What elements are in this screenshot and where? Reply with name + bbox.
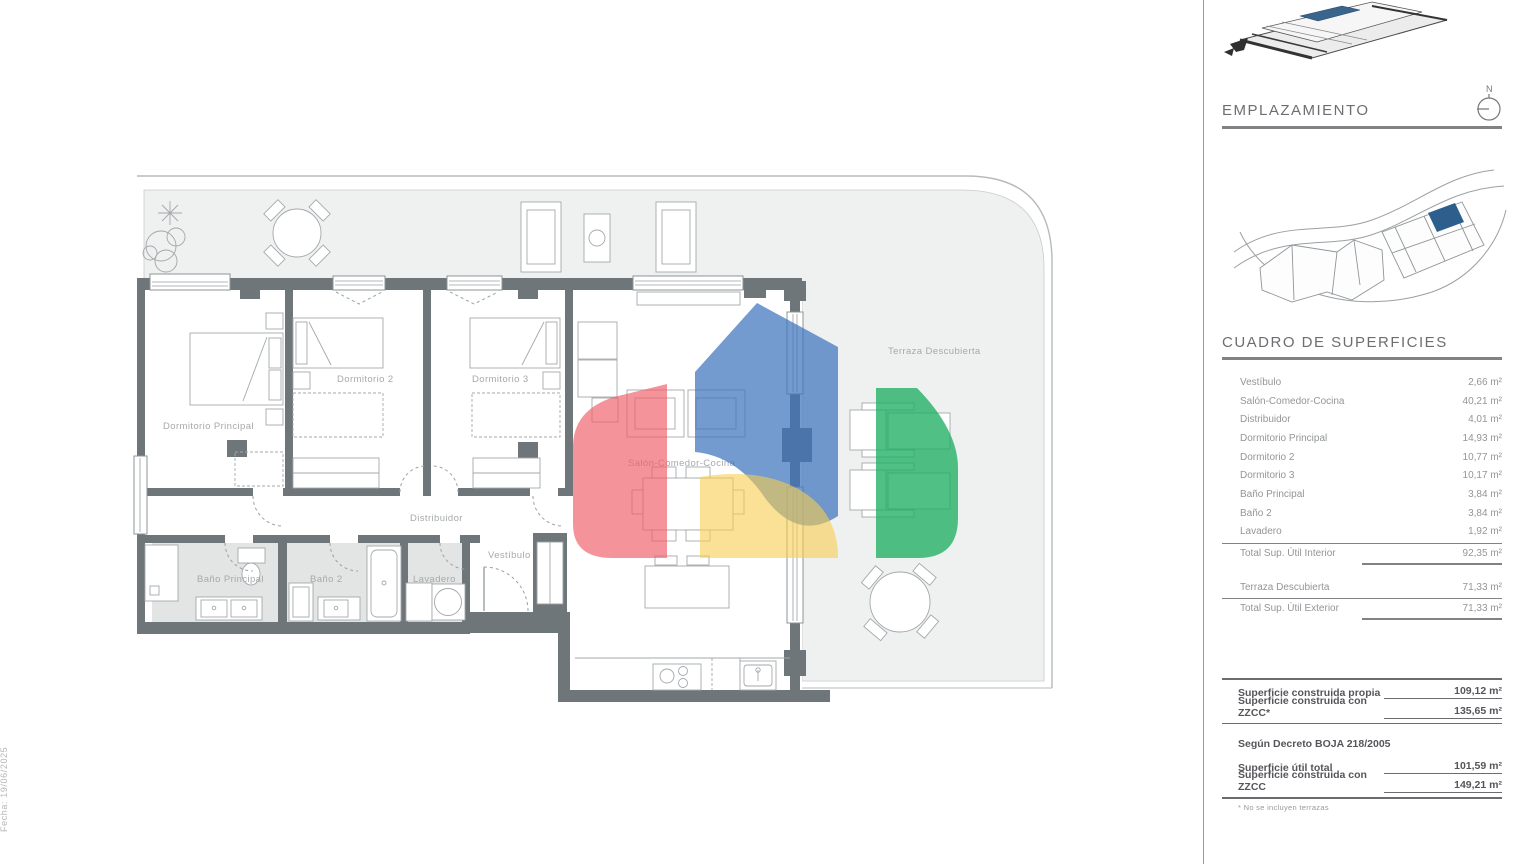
- row-value: 149,21 m²: [1384, 779, 1502, 793]
- row-label: Total Sup. Útil Exterior: [1240, 603, 1339, 614]
- row-label: Vestíbulo: [1240, 377, 1281, 388]
- row-label: Dormitorio Principal: [1240, 433, 1327, 444]
- table-row: Salón-Comedor-Cocina40,21 m²: [1222, 392, 1502, 411]
- label-terraza: Terraza Descubierta: [888, 346, 981, 357]
- decreto-header: Según Decreto BOJA 218/2005: [1222, 724, 1502, 754]
- label-bano-2: Baño 2: [310, 574, 343, 585]
- row-label: Salón-Comedor-Cocina: [1240, 396, 1345, 407]
- cuadro-rule: [1222, 357, 1502, 360]
- total-interior-row: Total Sup. Útil Interior92,35 m²: [1222, 544, 1502, 563]
- built-surface-summary: Superficie construida propia109,12 m² Su…: [1222, 678, 1502, 812]
- row-label: Distribuidor: [1240, 414, 1291, 425]
- row-value: 10,17 m²: [1463, 470, 1502, 481]
- table-row: Baño Principal3,84 m²: [1222, 485, 1502, 504]
- plan-sheet: Dormitorio Principal Dormitorio 2 Dormit…: [0, 0, 1536, 864]
- row-label: Superficie construida con ZZCC*: [1238, 695, 1384, 719]
- row-value: 135,65 m²: [1384, 705, 1502, 719]
- label-bano-principal: Baño Principal: [197, 574, 264, 585]
- table-row: Vestíbulo2,66 m²: [1222, 373, 1502, 392]
- table-row: Lavadero1,92 m²: [1222, 523, 1502, 542]
- label-distribuidor: Distribuidor: [410, 513, 463, 524]
- row-value: 3,84 m²: [1468, 489, 1502, 500]
- label-dormitorio-2: Dormitorio 2: [337, 374, 394, 385]
- row-label: Lavadero: [1240, 526, 1282, 537]
- row-label: Baño 2: [1240, 508, 1272, 519]
- table-row: Dormitorio Principal14,93 m²: [1222, 429, 1502, 448]
- row-label: Dormitorio 3: [1240, 470, 1294, 481]
- surfaces-table: Vestíbulo2,66 m² Salón-Comedor-Cocina40,…: [1222, 373, 1502, 620]
- table-row: Distribuidor4,01 m²: [1222, 410, 1502, 429]
- total-exterior-row: Total Sup. Útil Exterior71,33 m²: [1222, 599, 1502, 618]
- north-compass-icon: N: [1472, 82, 1506, 124]
- row-value: 109,12 m²: [1384, 685, 1502, 699]
- summary-row: Superficie construida con ZZCC*135,65 m²: [1222, 699, 1502, 719]
- row-label: Total Sup. Útil Interior: [1240, 548, 1336, 559]
- terraza-row: Terraza Descubierta71,33 m²: [1222, 578, 1502, 597]
- sheet-meta: DEPARTAMENTO TÉCNICO Revisión: 02 Fecha:…: [0, 666, 10, 832]
- row-value: 101,59 m²: [1384, 760, 1502, 774]
- row-label: Dormitorio 2: [1240, 452, 1294, 463]
- panel-divider: [1203, 0, 1204, 864]
- value-underline: [1362, 618, 1502, 620]
- emplazamiento-rule: [1222, 126, 1502, 129]
- site-building-left: [1260, 240, 1384, 302]
- row-value: 10,77 m²: [1463, 452, 1502, 463]
- row-label: Terraza Descubierta: [1240, 582, 1329, 593]
- label-lavadero: Lavadero: [413, 574, 456, 585]
- date-label: Fecha: 19/06/2025: [0, 666, 9, 832]
- site-plan-map: [1232, 140, 1512, 312]
- summary-row: Superficie construida con ZZCC149,21 m²: [1222, 774, 1502, 794]
- emplazamiento-title: EMPLAZAMIENTO: [1222, 102, 1504, 119]
- row-value: 4,01 m²: [1468, 414, 1502, 425]
- row-label: Superficie construida con ZZCC: [1238, 769, 1384, 793]
- laundry-fixtures: [406, 583, 465, 621]
- terraces-footnote: * No se incluyen terrazas: [1222, 799, 1502, 812]
- label-dormitorio-3: Dormitorio 3: [472, 374, 529, 385]
- cuadro-title: CUADRO DE SUPERFICIES: [1222, 334, 1504, 351]
- vestibule-closet: [537, 542, 563, 604]
- floor-plan: Dormitorio Principal Dormitorio 2 Dormit…: [0, 0, 1203, 864]
- north-label: N: [1486, 84, 1493, 94]
- row-value: 2,66 m²: [1468, 377, 1502, 388]
- table-row: Baño 23,84 m²: [1222, 504, 1502, 523]
- row-value: 71,33 m²: [1463, 603, 1502, 614]
- row-value: 1,92 m²: [1468, 526, 1502, 537]
- label-dormitorio-principal: Dormitorio Principal: [163, 421, 254, 432]
- row-value: 92,35 m²: [1463, 548, 1502, 559]
- row-value: 14,93 m²: [1463, 433, 1502, 444]
- row-value: 3,84 m²: [1468, 508, 1502, 519]
- table-row: Dormitorio 210,77 m²: [1222, 448, 1502, 467]
- row-label: Baño Principal: [1240, 489, 1304, 500]
- row-value: 40,21 m²: [1463, 396, 1502, 407]
- label-vestibulo: Vestíbulo: [488, 550, 531, 561]
- row-value: 71,33 m²: [1463, 582, 1502, 593]
- building-3d-thumbnail: [1222, 0, 1462, 64]
- table-row: Dormitorio 310,17 m²: [1222, 466, 1502, 485]
